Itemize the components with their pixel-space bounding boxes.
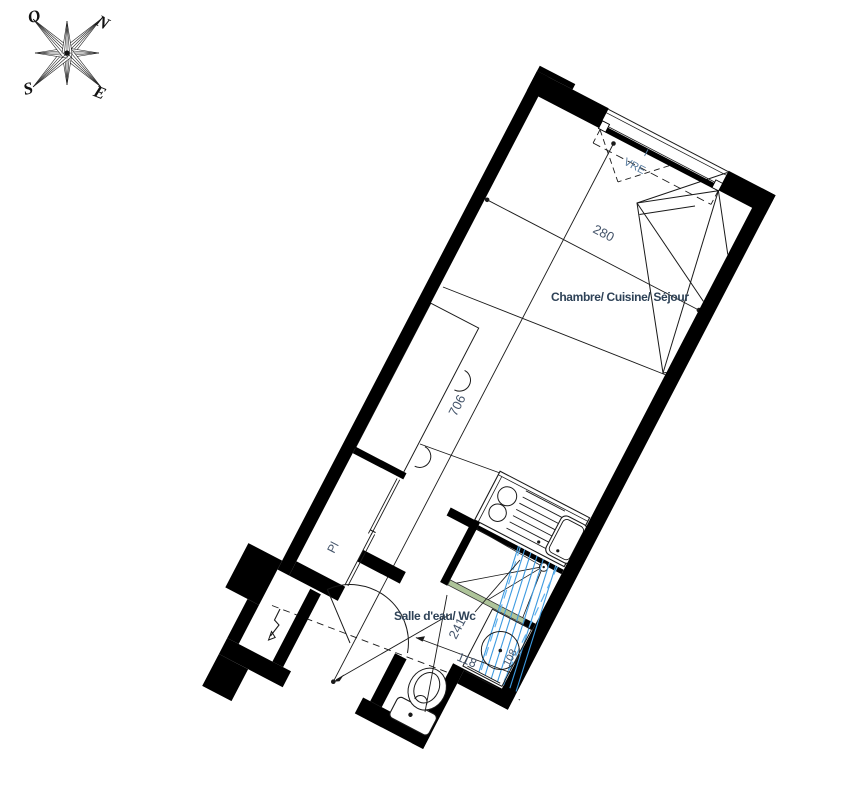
svg-text:Salle d'eau/ Wc: Salle d'eau/ Wc	[394, 609, 476, 623]
svg-text:706: 706	[445, 392, 468, 418]
svg-text:280: 280	[591, 221, 617, 244]
svg-text:Chambre/ Cuisine/ Séjour: Chambre/ Cuisine/ Séjour	[551, 290, 689, 304]
svg-text:E: E	[90, 81, 109, 103]
svg-text:O: O	[26, 6, 43, 27]
svg-text:VRE: VRE	[622, 156, 648, 177]
svg-text:S: S	[21, 78, 35, 99]
svg-text:N: N	[92, 11, 113, 34]
svg-text:Pl: Pl	[324, 539, 341, 555]
